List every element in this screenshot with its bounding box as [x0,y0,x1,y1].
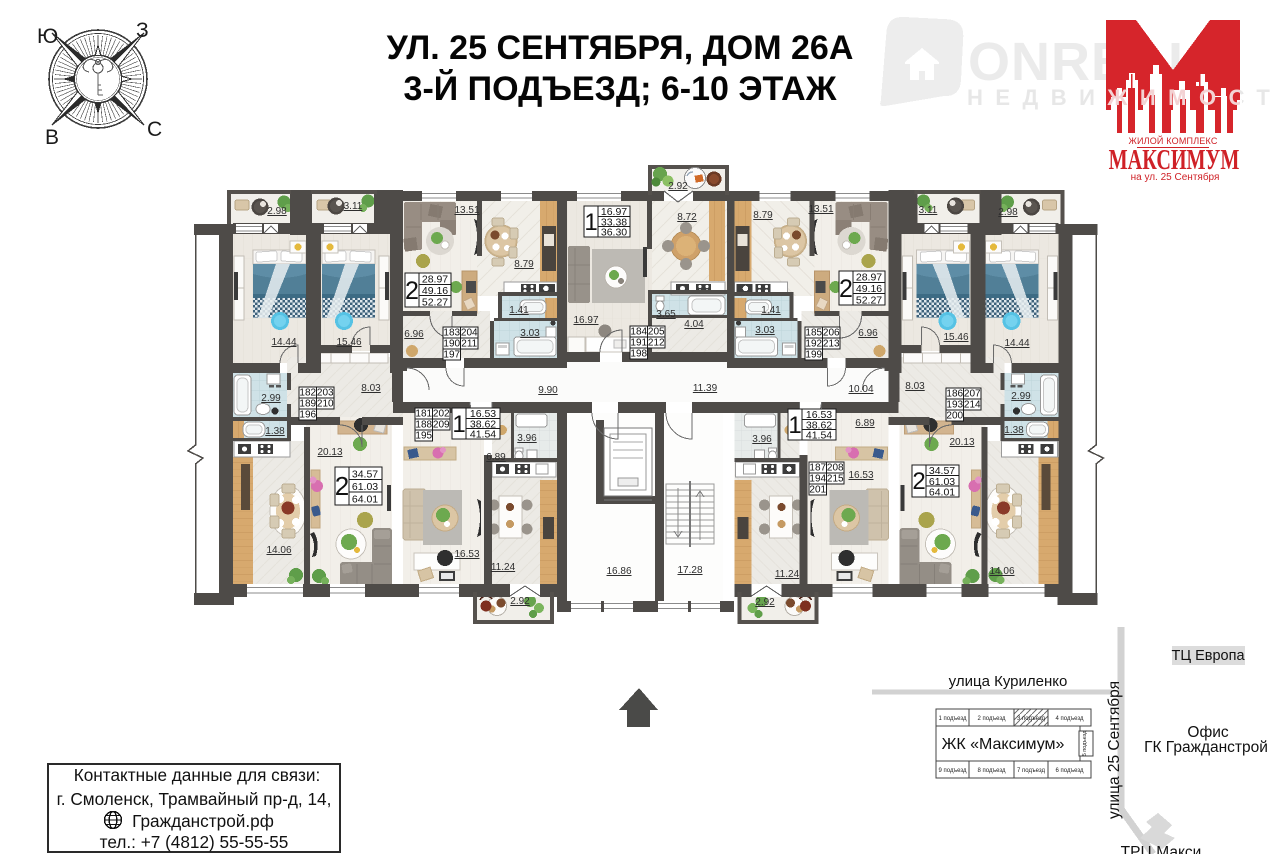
svg-text:Контактные данные для связи:: Контактные данные для связи: [74,765,321,785]
svg-text:16.86: 16.86 [606,566,631,577]
svg-text:193: 193 [946,400,963,411]
svg-text:28.97: 28.97 [856,272,882,284]
svg-text:187: 187 [809,463,826,474]
svg-text:9.90: 9.90 [538,385,558,396]
svg-text:8 подъезд: 8 подъезд [978,768,1006,774]
svg-text:194: 194 [809,474,826,485]
svg-text:209: 209 [433,420,450,431]
svg-text:1.41: 1.41 [509,305,529,316]
svg-text:8.79: 8.79 [514,259,534,270]
svg-text:Гражданстрой.рф: Гражданстрой.рф [132,811,274,831]
svg-text:1: 1 [788,412,801,439]
svg-text:214: 214 [964,400,981,411]
svg-text:3.96: 3.96 [517,433,537,444]
svg-text:2 подъезд: 2 подъезд [978,716,1006,722]
svg-text:28.97: 28.97 [422,274,448,286]
svg-text:195: 195 [415,431,432,442]
svg-text:тел.: +7 (4812) 55-55-55: тел.: +7 (4812) 55-55-55 [100,832,289,852]
svg-text:3.03: 3.03 [520,328,540,339]
svg-text:17.28: 17.28 [677,565,702,576]
svg-text:11.24: 11.24 [775,569,800,580]
svg-text:208: 208 [827,463,844,474]
svg-text:202: 202 [433,409,450,420]
svg-text:г. Смоленск, Трамвайный пр-д,: г. Смоленск, Трамвайный пр-д, 14, [57,789,332,809]
svg-text:1.38: 1.38 [1004,425,1024,436]
svg-text:3.03: 3.03 [755,325,775,336]
svg-text:210: 210 [317,399,334,410]
svg-text:ТРЦ Макси: ТРЦ Макси [1121,844,1202,854]
svg-text:34.57: 34.57 [352,469,378,481]
svg-text:на ул. 25 Сентября: на ул. 25 Сентября [1131,171,1220,183]
svg-text:52.27: 52.27 [856,294,882,306]
svg-text:2.99: 2.99 [1011,391,1031,402]
svg-text:15.46: 15.46 [943,332,968,343]
svg-text:2: 2 [335,471,349,501]
svg-text:2.99: 2.99 [261,393,281,404]
svg-text:16.53: 16.53 [848,470,873,481]
svg-text:2.98: 2.98 [267,206,287,217]
svg-text:8.03: 8.03 [905,381,925,392]
svg-text:196: 196 [299,410,316,421]
svg-text:1.41: 1.41 [761,305,781,316]
svg-text:183: 183 [443,328,460,339]
svg-text:1: 1 [584,209,597,236]
svg-text:1: 1 [452,411,465,438]
svg-text:215: 215 [827,474,844,485]
svg-text:2: 2 [912,468,925,495]
svg-text:20.13: 20.13 [317,447,342,458]
svg-text:2.92: 2.92 [668,181,688,192]
svg-text:5 подъезд: 5 подъезд [1082,730,1088,756]
svg-text:13.51: 13.51 [808,204,833,215]
svg-text:203: 203 [317,388,334,399]
svg-text:ЖК «Максимум»: ЖК «Максимум» [942,736,1065,753]
svg-text:190: 190 [443,339,460,350]
svg-text:6 подъезд: 6 подъезд [1056,768,1084,774]
svg-text:192: 192 [805,339,822,350]
svg-text:213: 213 [823,339,840,350]
svg-text:Ю: Ю [37,25,58,48]
svg-text:189: 189 [299,399,316,410]
svg-text:10.04: 10.04 [848,384,873,395]
svg-text:4 подъезд: 4 подъезд [1056,716,1084,722]
svg-text:181: 181 [415,409,432,420]
svg-text:13.51: 13.51 [454,205,479,216]
svg-text:2.92: 2.92 [510,596,530,607]
svg-text:52.27: 52.27 [422,296,448,308]
svg-text:2: 2 [839,275,853,303]
svg-text:6.96: 6.96 [858,328,878,339]
svg-text:15.46: 15.46 [336,337,361,348]
svg-text:3.11: 3.11 [919,205,938,216]
svg-text:14.44: 14.44 [271,337,296,348]
svg-text:3.11: 3.11 [344,201,363,212]
svg-text:6.89: 6.89 [855,418,875,429]
svg-text:6.96: 6.96 [404,329,424,340]
svg-text:3.96: 3.96 [752,434,772,445]
svg-text:206: 206 [823,328,840,339]
svg-text:11.24: 11.24 [491,562,516,573]
svg-text:184: 184 [630,327,647,338]
svg-text:3 подъезд: 3 подъезд [1017,716,1045,722]
svg-text:ГК Гражданстрой: ГК Гражданстрой [1144,739,1268,756]
svg-text:1 подъезд: 1 подъезд [939,716,967,722]
svg-text:2.98: 2.98 [998,207,1018,218]
svg-text:ТЦ Европа: ТЦ Европа [1171,648,1245,664]
svg-text:205: 205 [648,327,665,338]
svg-text:199: 199 [805,350,822,361]
svg-text:41.54: 41.54 [806,430,832,442]
svg-text:11.39: 11.39 [693,383,718,394]
svg-text:20.13: 20.13 [949,437,974,448]
svg-text:8.72: 8.72 [677,212,697,223]
svg-text:14.06: 14.06 [266,545,291,556]
svg-text:64.01: 64.01 [352,494,378,506]
svg-text:1.38: 1.38 [265,426,285,437]
svg-text:8.79: 8.79 [753,210,773,221]
svg-text:182: 182 [299,388,316,399]
svg-text:191: 191 [630,338,647,349]
svg-text:С: С [147,118,162,141]
svg-text:211: 211 [461,339,477,350]
svg-text:14.44: 14.44 [1004,338,1029,349]
svg-text:8.03: 8.03 [361,383,381,394]
svg-text:61.03: 61.03 [352,481,378,493]
svg-text:185: 185 [805,328,822,339]
svg-text:3-Й ПОДЪЕЗД; 6-10 ЭТАЖ: 3-Й ПОДЪЕЗД; 6-10 ЭТАЖ [404,69,837,108]
svg-text:49.16: 49.16 [422,285,448,297]
svg-text:41.54: 41.54 [470,429,496,441]
svg-text:2: 2 [405,277,419,305]
svg-text:В: В [45,126,59,149]
svg-text:49.16: 49.16 [856,283,882,295]
svg-text:197: 197 [443,350,460,361]
svg-text:З: З [136,19,149,42]
svg-text:212: 212 [648,338,665,349]
svg-text:14.06: 14.06 [989,566,1014,577]
svg-text:201: 201 [809,485,826,496]
svg-text:16.97: 16.97 [573,315,598,326]
svg-text:улица 25 Сентября: улица 25 Сентября [1106,681,1123,819]
svg-text:9 подъезд: 9 подъезд [939,768,967,774]
svg-text:204: 204 [461,328,478,339]
svg-text:207: 207 [964,389,981,400]
svg-text:198: 198 [630,349,647,360]
svg-text:2.92: 2.92 [755,597,775,608]
svg-text:4.04: 4.04 [684,319,704,330]
svg-text:УЛ. 25 СЕНТЯБРЯ, ДОМ 26А: УЛ. 25 СЕНТЯБРЯ, ДОМ 26А [387,29,854,67]
svg-text:188: 188 [415,420,432,431]
svg-text:64.01: 64.01 [929,486,955,498]
svg-text:3.65: 3.65 [656,309,676,320]
svg-text:16.53: 16.53 [454,549,479,560]
svg-text:7 подъезд: 7 подъезд [1017,768,1045,774]
svg-text:улица Куриленко: улица Куриленко [949,673,1068,690]
svg-text:186: 186 [946,389,963,400]
svg-text:200: 200 [946,411,963,422]
svg-text:6.89: 6.89 [486,452,506,463]
svg-text:36.30: 36.30 [601,227,627,239]
